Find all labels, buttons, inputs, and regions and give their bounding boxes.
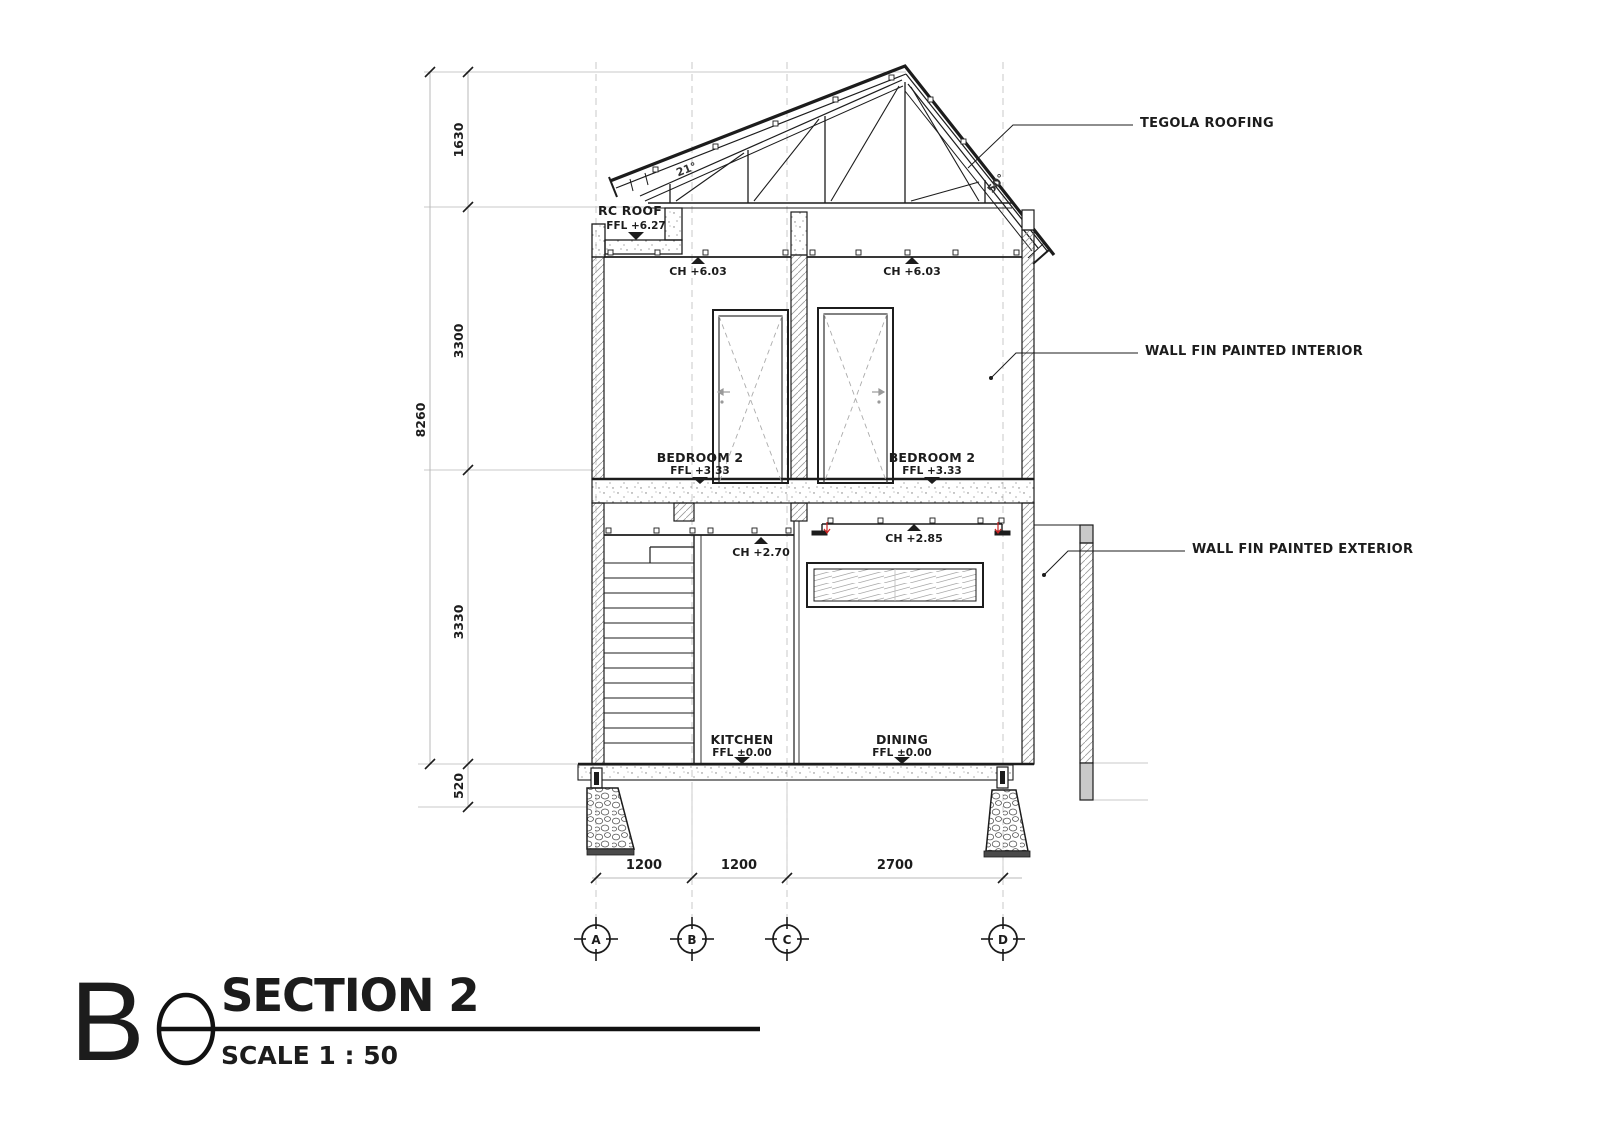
dim-1630: 1630: [453, 123, 466, 158]
bedroom-right-label: BEDROOM 2: [889, 452, 976, 465]
wall-right-upper: [1022, 230, 1034, 479]
door-right: [818, 308, 893, 483]
dim-2700: 2700: [877, 859, 913, 872]
grid-letter-b: B: [687, 934, 696, 946]
ch-marker-dining: [907, 524, 921, 531]
bedroom-left-ffl-label: FFL +3.33: [670, 466, 729, 477]
drawing-scale: SCALE 1 : 50: [221, 1043, 398, 1068]
leader-wall-ext: [1044, 551, 1185, 575]
ffl-marker-rcroof: [628, 232, 644, 240]
ch-marker-upper-left: [691, 257, 705, 264]
ch-upper-left-label: CH +6.03: [669, 266, 726, 277]
ceiling-hangers-kitchen: [606, 528, 791, 533]
wall-left-lower: [592, 503, 604, 764]
wall-left-upper: [592, 257, 604, 479]
bedroom-left-label: BEDROOM 2: [657, 452, 744, 465]
ch-dining-label: CH +2.85: [885, 533, 942, 544]
ch-marker-upper-right: [905, 257, 919, 264]
drawing-title: SECTION 2: [221, 973, 479, 1018]
dim-1200-a: 1200: [626, 859, 662, 872]
fin-wall-cap: [1080, 525, 1093, 543]
tegola-roofing-label: TEGOLA ROOFING: [1140, 117, 1274, 130]
rc-roof-ffl-label: FFL +6.27: [606, 221, 665, 232]
leader-tegola: [968, 125, 1133, 168]
section-drawing-sheet: TEGOLA ROOFING WALL FIN PAINTED INTERIOR…: [0, 0, 1600, 1131]
fin-wall: [1034, 525, 1093, 800]
section-letter: B: [70, 966, 145, 1078]
kitchen-ffl-label: FFL ±0.00: [712, 748, 771, 759]
section-linework: [0, 0, 1600, 1131]
grid-letter-d: D: [998, 934, 1008, 946]
wall-right-stub-top: [1022, 210, 1034, 230]
dining-ffl-label: FFL ±0.00: [872, 748, 931, 759]
leader-wall-int: [991, 353, 1138, 378]
ch-upper-right-label: CH +6.03: [883, 266, 940, 277]
staircase: [604, 535, 701, 764]
wall-fin-interior-label: WALL FIN PAINTED INTERIOR: [1145, 345, 1363, 358]
fin-wall-base: [1080, 763, 1093, 800]
wall-right-lower: [1022, 503, 1034, 764]
grid-letter-c: C: [783, 934, 792, 946]
dining-window: [807, 563, 983, 607]
bedroom-right-ffl-label: FFL +3.33: [902, 466, 961, 477]
wall-middle-upper: [791, 255, 807, 479]
grid-bubbles: [574, 917, 1025, 961]
second-floor-slab: [592, 479, 1034, 503]
dim-8260-total: 8260: [415, 403, 428, 438]
ch-kitchen-label: CH +2.70: [732, 547, 789, 558]
grid-letter-a: A: [591, 934, 600, 946]
door-handle-icon: [718, 389, 730, 404]
dim-1200-b: 1200: [721, 859, 757, 872]
ceiling-hangers-dining: [828, 518, 1004, 523]
dim-3300: 3300: [453, 324, 466, 359]
wall-fin-exterior-label: WALL FIN PAINTED EXTERIOR: [1192, 543, 1413, 556]
dim-520: 520: [453, 773, 466, 799]
door-handle-icon: [872, 389, 884, 404]
ground-slab: [578, 765, 1013, 780]
kitchen-label: KITCHEN: [711, 734, 774, 747]
footing-left: [587, 768, 634, 855]
rc-roof-label: RC ROOF: [598, 205, 662, 218]
ch-marker-kitchen: [754, 537, 768, 544]
dim-3330: 3330: [453, 605, 466, 640]
dining-label: DINING: [876, 734, 928, 747]
wall-middle-stub-top: [791, 212, 807, 255]
